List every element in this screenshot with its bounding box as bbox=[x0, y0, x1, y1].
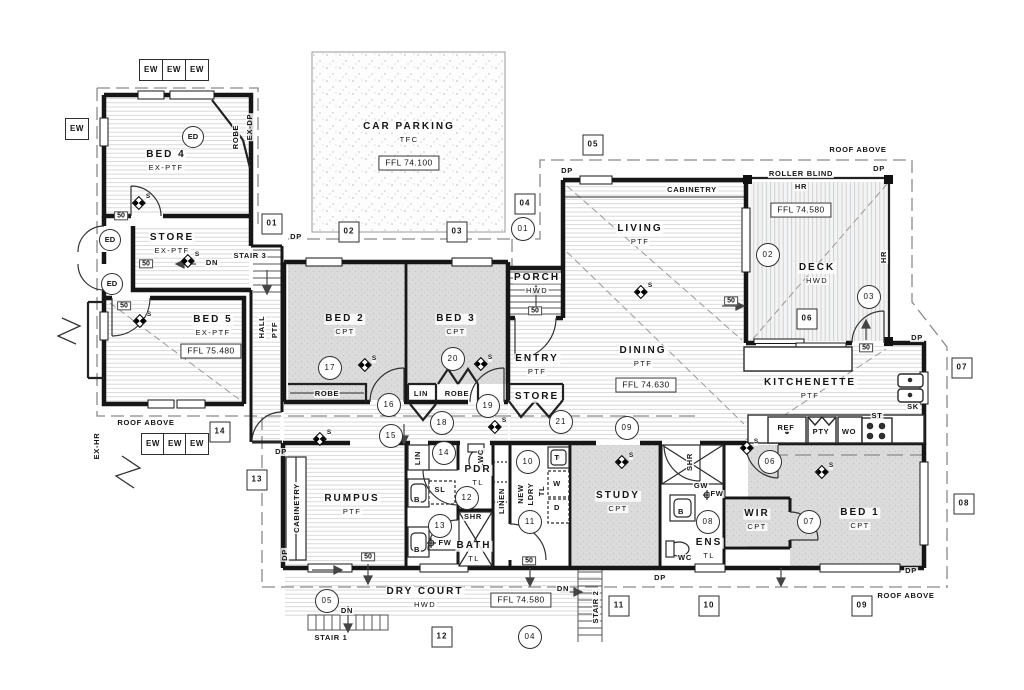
door-tag: 19 bbox=[476, 394, 500, 418]
room-finish-pdr: TL bbox=[471, 479, 485, 487]
smoke-diamond-icon bbox=[133, 314, 147, 328]
door-tag: 02 bbox=[756, 243, 780, 267]
window-tag: 05 bbox=[583, 135, 604, 156]
annotation: ST bbox=[871, 412, 884, 420]
clearance-50-tag: 50 bbox=[724, 296, 738, 305]
smoke-detector-icon: S bbox=[636, 287, 652, 297]
annotation: WC bbox=[677, 554, 693, 562]
room-label-bed-4: BED 4 bbox=[145, 150, 186, 161]
annotation: ROBE bbox=[232, 124, 240, 150]
room-label-pdr: PDR bbox=[463, 465, 492, 476]
existing-window-tag: EW bbox=[162, 59, 186, 81]
annotation: CABINETRY bbox=[666, 186, 718, 194]
annotation: LIN bbox=[414, 450, 422, 466]
annotation: PTF bbox=[271, 321, 279, 339]
annotation: CABINETRY bbox=[293, 482, 301, 534]
annotation: FW bbox=[437, 539, 452, 547]
door-tag: 03 bbox=[857, 285, 881, 309]
annotation: STAIR 1 bbox=[313, 634, 348, 642]
clearance-50-tag: 50 bbox=[139, 259, 153, 268]
annotation: ROLLER BLIND bbox=[768, 170, 834, 178]
annotation: LINEN bbox=[498, 487, 506, 515]
smoke-detector-label: S bbox=[754, 439, 758, 446]
annotation: ROOF ABOVE bbox=[828, 146, 887, 154]
smoke-diamond-icon bbox=[488, 420, 502, 434]
room-label-deck: DECK bbox=[798, 263, 836, 274]
smoke-detector-icon: S bbox=[183, 256, 199, 266]
ffl-level-box: FFL 74.630 bbox=[615, 378, 676, 393]
window-tag: 11 bbox=[609, 596, 630, 617]
window-tag: 09 bbox=[852, 596, 873, 617]
annotation: T bbox=[553, 454, 560, 462]
room-label-kitchenette: KITCHENETTE bbox=[763, 378, 857, 389]
annotation: ROOF ABOVE bbox=[876, 592, 935, 600]
smoke-detector-label: S bbox=[372, 356, 376, 363]
room-finish-car-parking: TFC bbox=[399, 136, 420, 144]
clearance-50-tag: 50 bbox=[361, 552, 375, 561]
door-tag: 14 bbox=[432, 441, 456, 465]
existing-door-tag: ED bbox=[99, 229, 121, 251]
window-tag: 06 bbox=[797, 309, 818, 330]
smoke-detector-icon: S bbox=[476, 359, 492, 369]
room-finish-study: CPT bbox=[607, 505, 628, 513]
clearance-50-tag: 50 bbox=[522, 556, 536, 565]
door-tag: 11 bbox=[518, 510, 542, 534]
ffl-level-box: FFL 74.580 bbox=[490, 593, 551, 608]
room-finish-entry: PTF bbox=[527, 368, 547, 376]
window-tag: 07 bbox=[952, 358, 973, 379]
annotation: DP bbox=[289, 233, 303, 241]
smoke-diamond-icon bbox=[358, 358, 372, 372]
existing-window-tag: EW bbox=[185, 59, 209, 81]
door-tag: 15 bbox=[379, 424, 403, 448]
room-finish-kitchenette: PTF bbox=[800, 392, 820, 400]
door-tag: 05 bbox=[315, 589, 339, 613]
window-tag: 13 bbox=[247, 470, 268, 491]
door-tag: 17 bbox=[318, 356, 342, 380]
smoke-detector-label: S bbox=[146, 194, 150, 201]
smoke-detector-icon: S bbox=[134, 198, 150, 208]
existing-window-tag: EW bbox=[185, 433, 209, 455]
room-finish-bed-3: CPT bbox=[445, 328, 466, 336]
smoke-detector-label: S bbox=[327, 430, 331, 437]
door-tag: 10 bbox=[516, 450, 540, 474]
room-label-bed-3: BED 3 bbox=[435, 314, 476, 325]
door-tag: 08 bbox=[696, 510, 720, 534]
smoke-diamond-icon bbox=[181, 254, 195, 268]
annotation: DP bbox=[274, 448, 288, 456]
room-label-dry-court: DRY COURT bbox=[386, 587, 465, 598]
room-label-porch: PORCH bbox=[513, 273, 561, 284]
smoke-detector-icon: S bbox=[490, 422, 506, 432]
annotation: DP bbox=[910, 334, 924, 342]
smoke-detector-label: S bbox=[648, 283, 652, 290]
annotation: B bbox=[413, 546, 421, 554]
annotation: DN bbox=[556, 585, 570, 593]
annotation: DN bbox=[340, 607, 354, 615]
floor-plan: BED 4EX-PTFSTOREEX-PTFBED 5EX-PTFCAR PAR… bbox=[0, 0, 1024, 690]
room-label-bed-1: BED 1 bbox=[839, 508, 880, 519]
room-finish-ens: TL bbox=[702, 552, 716, 560]
smoke-detector-icon: S bbox=[135, 316, 151, 326]
existing-window-tag: EW bbox=[141, 433, 165, 455]
room-finish-bed-2: CPT bbox=[334, 328, 355, 336]
annotation: B bbox=[413, 496, 421, 504]
annotation: NEW bbox=[517, 483, 525, 505]
door-tag: 13 bbox=[428, 514, 452, 538]
annotation: REF bbox=[776, 424, 795, 432]
room-finish-dry-court: HWD bbox=[413, 601, 437, 609]
annotation: GW bbox=[693, 482, 709, 490]
annotation: HR bbox=[880, 250, 888, 264]
door-tag: 18 bbox=[430, 411, 454, 435]
smoke-detector-icon: S bbox=[817, 467, 833, 477]
door-tag: 20 bbox=[441, 347, 465, 371]
annotation: HR bbox=[794, 183, 808, 191]
annotation: STAIR 2 bbox=[592, 589, 600, 624]
room-finish-bath: TL bbox=[467, 555, 481, 563]
clearance-50-tag: 50 bbox=[528, 306, 542, 315]
smoke-diamond-icon bbox=[615, 455, 629, 469]
smoke-detector-label: S bbox=[629, 453, 633, 460]
smoke-detector-label: S bbox=[147, 312, 151, 319]
ffl-level-box: FFL 75.480 bbox=[180, 344, 241, 359]
room-label-wir: WIR bbox=[743, 509, 770, 520]
annotation: DP bbox=[904, 567, 918, 575]
smoke-detector-icon: S bbox=[617, 457, 633, 467]
existing-window-tag: EW bbox=[65, 118, 89, 140]
smoke-diamond-icon bbox=[740, 441, 754, 455]
clearance-50-tag: 50 bbox=[859, 343, 873, 352]
smoke-detector-label: S bbox=[195, 252, 199, 259]
window-tag: 03 bbox=[447, 222, 468, 243]
annotation: DP bbox=[560, 167, 574, 175]
door-tag: 16 bbox=[377, 393, 401, 417]
annotation: D bbox=[553, 504, 561, 512]
smoke-detector-icon: S bbox=[360, 360, 376, 370]
room-finish-store-existing: EX-PTF bbox=[153, 247, 190, 255]
annotation: DP bbox=[281, 548, 289, 562]
door-tag: 12 bbox=[455, 486, 479, 510]
door-tag: 04 bbox=[518, 625, 542, 649]
window-tag: 10 bbox=[699, 596, 720, 617]
window-tag: 01 bbox=[262, 214, 283, 235]
annotation: SL bbox=[434, 486, 447, 494]
existing-window-tag: EW bbox=[163, 433, 187, 455]
existing-door-tag: ED bbox=[101, 273, 123, 295]
annotation: DP bbox=[653, 574, 667, 582]
smoke-detector-icon: S bbox=[315, 434, 331, 444]
window-tag: 12 bbox=[432, 627, 453, 648]
room-finish-bed-4: EX-PTF bbox=[147, 164, 184, 172]
annotation: SK bbox=[906, 403, 920, 411]
ffl-level-box: FFL 74.580 bbox=[770, 203, 831, 218]
room-label-entry: ENTRY bbox=[514, 354, 560, 365]
annotation: EX-DP bbox=[246, 113, 254, 141]
annotation: PTY bbox=[812, 428, 831, 436]
existing-window-tag: EW bbox=[139, 59, 163, 81]
annotation: STAIR 3 bbox=[232, 252, 267, 260]
room-finish-wir: CPT bbox=[746, 523, 767, 531]
window-tag: 08 bbox=[954, 494, 975, 515]
existing-door-tag: ED bbox=[182, 126, 204, 148]
smoke-diamond-icon bbox=[815, 465, 829, 479]
door-tag: 06 bbox=[758, 450, 782, 474]
smoke-diamond-icon bbox=[634, 285, 648, 299]
annotation: DN bbox=[205, 259, 219, 267]
annotation: B bbox=[677, 508, 685, 516]
smoke-diamond-icon bbox=[474, 357, 488, 371]
ffl-level-box: FFL 74.100 bbox=[378, 156, 439, 171]
clearance-50-tag: 50 bbox=[117, 301, 131, 310]
smoke-detector-label: S bbox=[829, 463, 833, 470]
room-label-car-parking: CAR PARKING bbox=[362, 122, 456, 133]
annotation: W bbox=[552, 480, 562, 488]
smoke-diamond-icon bbox=[313, 432, 327, 446]
room-finish-rumpus: PTF bbox=[342, 508, 362, 516]
room-finish-bed-5: EX-PTF bbox=[194, 329, 231, 337]
annotation: HALL bbox=[258, 315, 266, 340]
room-label-ens: ENS bbox=[695, 538, 724, 549]
annotation: LIN bbox=[413, 390, 429, 398]
annotation: LDRY bbox=[527, 482, 535, 507]
label-layer: BED 4EX-PTFSTOREEX-PTFBED 5EX-PTFCAR PAR… bbox=[0, 0, 1024, 690]
annotation: DP bbox=[872, 165, 886, 173]
door-tag: 01 bbox=[511, 217, 535, 241]
annotation: ROBE bbox=[444, 390, 470, 398]
annotation: TL bbox=[538, 485, 546, 498]
room-label-study: STUDY bbox=[595, 491, 641, 502]
room-label-bed-2: BED 2 bbox=[324, 314, 365, 325]
window-tag: 04 bbox=[515, 194, 536, 215]
room-label-dining: DINING bbox=[619, 346, 668, 357]
annotation: ROOF ABOVE bbox=[116, 419, 175, 427]
room-finish-bed-1: CPT bbox=[849, 522, 870, 530]
room-finish-deck: HWD bbox=[805, 277, 829, 285]
annotation: EX-HR bbox=[93, 432, 101, 461]
annotation: WC bbox=[477, 448, 485, 464]
room-label-bed-5: BED 5 bbox=[192, 315, 233, 326]
annotation: WO bbox=[841, 428, 857, 436]
smoke-detector-icon: S bbox=[742, 443, 758, 453]
annotation: ROBE bbox=[314, 390, 340, 398]
annotation: SHR bbox=[686, 452, 694, 472]
room-label-bath: BATH bbox=[455, 541, 492, 552]
smoke-detector-label: S bbox=[488, 355, 492, 362]
annotation: SHR bbox=[463, 513, 483, 521]
window-tag: 02 bbox=[339, 222, 360, 243]
annotation: FW bbox=[709, 490, 724, 498]
room-finish-porch: HWD bbox=[525, 287, 549, 295]
door-tag: 07 bbox=[797, 510, 821, 534]
room-label-entry-store: STORE bbox=[514, 392, 560, 403]
window-tag: 14 bbox=[210, 422, 231, 443]
room-finish-living: PTF bbox=[630, 238, 650, 246]
door-tag: 21 bbox=[549, 410, 573, 434]
room-finish-dining: PTF bbox=[633, 360, 653, 368]
room-label-rumpus: RUMPUS bbox=[323, 494, 380, 505]
smoke-diamond-icon bbox=[132, 196, 146, 210]
door-tag: 09 bbox=[615, 416, 639, 440]
smoke-detector-label: S bbox=[502, 418, 506, 425]
clearance-50-tag: 50 bbox=[114, 211, 128, 220]
room-label-living: LIVING bbox=[616, 224, 663, 235]
room-label-store-existing: STORE bbox=[149, 233, 195, 244]
